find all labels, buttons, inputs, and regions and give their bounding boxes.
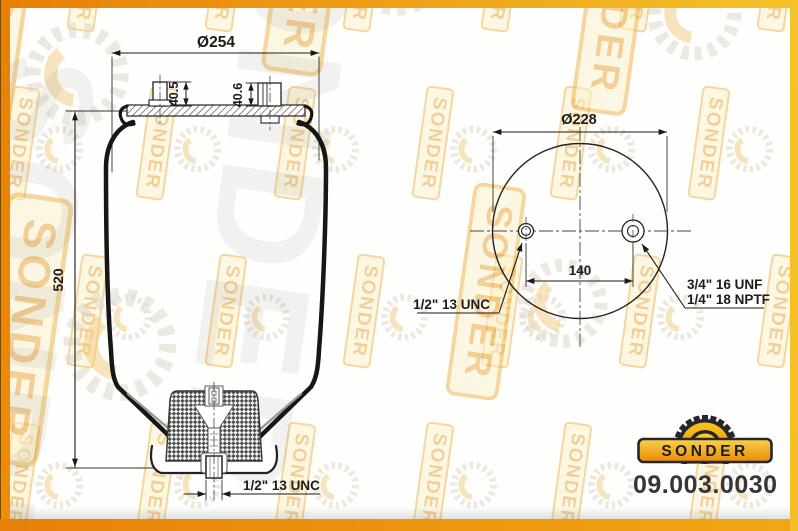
dim-overall-height: 520 [50,268,66,292]
label-left-hole-thread: 1/2" 13 UNC [413,297,490,312]
dim-hole-spacing: 140 [569,263,592,278]
dim-right-stud-height: 40.6 [231,83,245,107]
dim-left-stud-height: 40.5 [167,82,181,106]
side-view-drawing: Ø254 520 40.5 [50,34,326,502]
dim-bottom-thread: 1/2" 13 UNC [243,478,320,493]
sonder-logo: SONDER [637,402,773,464]
part-number: 09.003.0030 [633,471,777,500]
label-right-hole-thread-1: 3/4" 16 UNF [687,277,762,292]
dim-top-diameter: Ø254 [197,34,235,51]
top-view-drawing: Ø228 140 1/2" 13 UNC 3/4" 16 UNF 1/4" 18… [413,112,770,347]
dim-plate-diameter: Ø228 [561,112,596,128]
catalog-image-frame: SONDERSONDERSONDERSONDERSONDERSONDERSOND… [0,0,798,531]
brand-name: SONDER [661,443,748,460]
label-right-hole-thread-2: 1/4" 18 NPTF [687,292,770,307]
brand-block: SONDER 09.003.0030 [633,402,777,500]
